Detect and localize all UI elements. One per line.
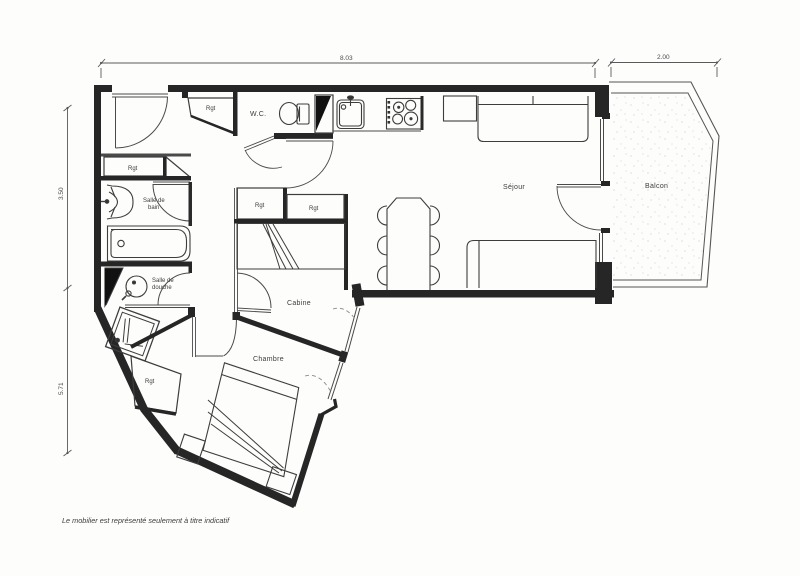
svg-text:Salle de: Salle de: [143, 198, 165, 204]
svg-text:2.00: 2.00: [657, 54, 670, 61]
svg-text:bain: bain: [148, 205, 159, 211]
svg-text:Rgt: Rgt: [145, 379, 155, 385]
svg-text:Séjour: Séjour: [503, 184, 525, 191]
svg-text:Le mobilier est représenté seu: Le mobilier est représenté seulement à t…: [62, 516, 230, 525]
svg-text:Rgt: Rgt: [206, 106, 216, 112]
svg-text:Cabine: Cabine: [287, 300, 311, 307]
svg-text:Chambre: Chambre: [253, 356, 284, 363]
svg-text:3.50: 3.50: [58, 187, 65, 200]
svg-text:Rgt: Rgt: [128, 166, 138, 172]
svg-text:Balcon: Balcon: [645, 183, 668, 190]
svg-text:5.71: 5.71: [58, 382, 65, 395]
svg-text:W.C.: W.C.: [250, 111, 266, 118]
svg-text:8.03: 8.03: [340, 55, 353, 62]
svg-text:Rgt: Rgt: [309, 206, 319, 212]
svg-text:douche: douche: [152, 285, 172, 291]
svg-text:Rgt: Rgt: [255, 203, 265, 209]
